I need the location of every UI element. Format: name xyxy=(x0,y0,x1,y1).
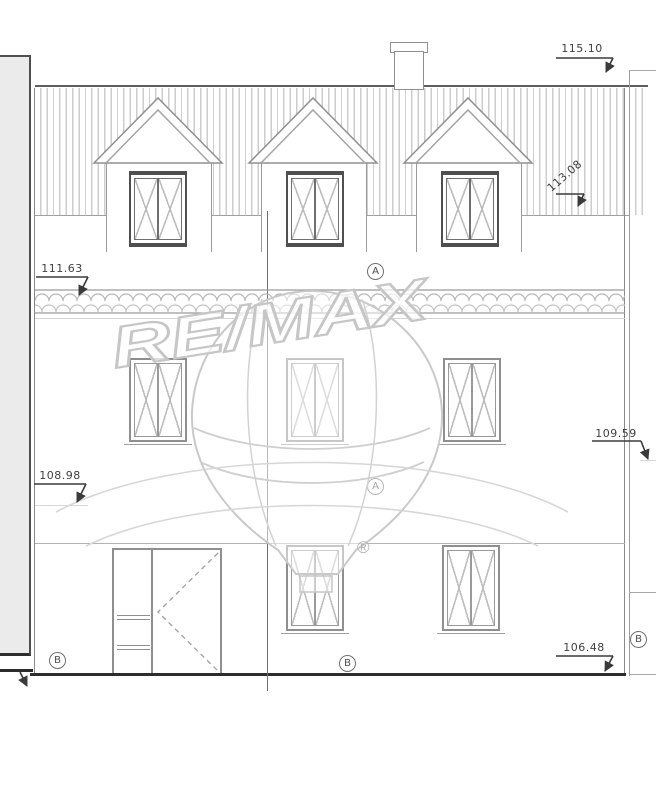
axis-marker-a-lower: A xyxy=(367,478,384,495)
dimension-label-ridge: 115.10 xyxy=(552,42,612,55)
window-sash xyxy=(315,550,339,626)
window-sash xyxy=(471,550,495,626)
registered-mark: ® xyxy=(357,538,370,557)
ground-line-left xyxy=(0,669,33,672)
door-divider xyxy=(151,550,153,675)
axis-marker-b-right: B xyxy=(630,631,647,648)
axis-marker-a-upper: A xyxy=(367,263,384,280)
balloon-wide-arcs xyxy=(56,463,568,547)
window-sill xyxy=(438,444,506,445)
window-sill xyxy=(281,633,349,634)
window-sash xyxy=(470,178,494,240)
window-sill xyxy=(281,444,349,445)
window-middle-right xyxy=(443,358,501,442)
elevation-drawing: A A B B B 115.10 113.08 111.63 108.98 10… xyxy=(0,0,656,800)
facade-right-edge xyxy=(624,88,625,675)
adjacent-building-left xyxy=(0,55,31,656)
dimension-label-right-level: 109.59 xyxy=(590,427,642,440)
window-lower-center xyxy=(286,545,344,631)
window-middle-center xyxy=(286,358,344,442)
window-sash xyxy=(134,363,158,437)
window-sash xyxy=(134,178,158,240)
marker-letter: B xyxy=(344,658,351,669)
marker-letter: B xyxy=(54,655,61,666)
window-sash xyxy=(447,550,471,626)
window-sash xyxy=(291,550,315,626)
section-cut-line xyxy=(267,211,268,691)
ground-line xyxy=(30,673,626,676)
axis-marker-b-left: B xyxy=(49,652,66,669)
adjacent-right-top-line xyxy=(629,70,656,71)
chimney-body xyxy=(394,51,424,90)
first-floor-line xyxy=(35,543,625,544)
window-sash xyxy=(446,178,470,240)
window-sash xyxy=(158,178,182,240)
entrance-door xyxy=(112,548,222,675)
window-sash xyxy=(291,363,315,437)
window-sash xyxy=(448,363,472,437)
window-sash xyxy=(291,178,315,240)
window-sash xyxy=(315,178,339,240)
door-rail xyxy=(117,615,150,620)
tile-course xyxy=(35,290,625,319)
window-sill xyxy=(124,444,192,445)
window-lower-right xyxy=(442,545,500,631)
window-middle-left xyxy=(129,358,187,442)
window-sash xyxy=(158,363,182,437)
axis-marker-b-center: B xyxy=(339,655,356,672)
window-sill xyxy=(437,633,505,634)
marker-letter: A xyxy=(372,266,379,277)
dimension-label-street-level: 106.48 xyxy=(554,641,614,654)
dormer-1-window xyxy=(129,171,187,247)
adjacent-right-ground-line xyxy=(629,674,656,675)
window-sash xyxy=(315,363,339,437)
dimension-label-left-level: 108.98 xyxy=(33,469,87,482)
dormer-2-window xyxy=(286,171,344,247)
dormer-3-window xyxy=(441,171,499,247)
dimension-label-left-cornice: 111.63 xyxy=(36,262,88,275)
window-sash xyxy=(472,363,496,437)
marker-letter: B xyxy=(635,634,642,645)
marker-letter: A xyxy=(372,481,379,492)
left-level-line xyxy=(35,505,88,506)
facade-left-edge xyxy=(34,88,35,675)
adjacent-building-right-edge xyxy=(629,70,630,676)
adjacent-right-level-line xyxy=(640,460,656,461)
door-rail xyxy=(117,645,150,650)
adjacent-right-floor-line xyxy=(629,592,656,593)
roof-ridge-line xyxy=(35,85,648,87)
